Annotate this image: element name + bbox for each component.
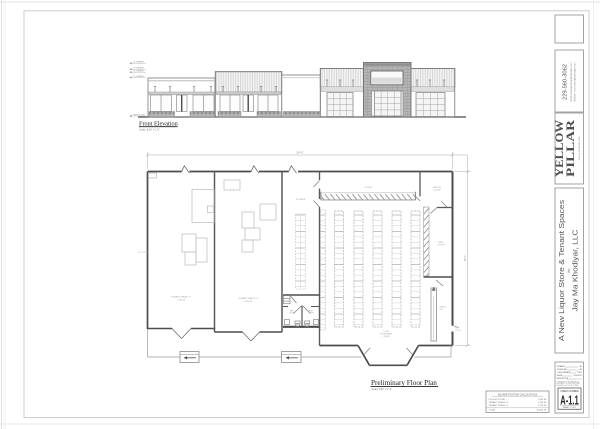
svg-text:7,286 SF: 7,286 SF (382, 336, 390, 338)
svg-text:1,786 SF: 1,786 SF (538, 405, 548, 407)
svg-text:COOLER: COOLER (437, 245, 445, 247)
svg-text:T.O. PARAPET: T.O. PARAPET (133, 61, 144, 64)
svg-text:ROOM: ROOM (290, 312, 296, 314)
svg-text:DATE: DATE (557, 374, 563, 377)
svg-text:T.O. PARAPET: T.O. PARAPET (133, 75, 144, 78)
svg-text:SQUARE FOOTAGE CALCULATIONS: SQUARE FOOTAGE CALCULATIONS (498, 393, 538, 396)
svg-text:TENANT SPACE #2: TENANT SPACE #2 (238, 297, 258, 300)
svg-text:1,786 SF: 1,786 SF (177, 300, 187, 302)
svg-text:7,286 SF: 7,286 SF (538, 399, 548, 401)
svg-text:SHEET 1 OF 1: SHEET 1 OF 1 (563, 407, 577, 409)
svg-text:A New Liquor Store & Tenant Sp: A New Liquor Store & Tenant Spaces (557, 200, 566, 341)
svg-text:FINISH FLOOR: FINISH FLOOR (133, 114, 146, 116)
svg-text:01/05/23: 01/05/23 (574, 375, 583, 377)
svg-text:Scale: 3/16" = 1'-0": Scale: 3/16" = 1'-0" (140, 128, 160, 131)
svg-text:204'-0": 204'-0" (296, 152, 304, 155)
svg-text:Website: www.yellowpillardesig: Website: www.yellowpillardesigns.com (573, 62, 576, 101)
svg-text:YELLOW PILLAR DESIGNS: YELLOW PILLAR DESIGNS (578, 136, 581, 161)
svg-text:DESIGNS, NOT TO BE COPIED: DESIGNS, NOT TO BE COPIED (557, 385, 580, 387)
svg-text:85'-4": 85'-4" (464, 255, 467, 261)
svg-text:REST: REST (290, 310, 294, 312)
svg-text:TOTAL: TOTAL (489, 409, 497, 412)
svg-text:229-560-3062: 229-560-3062 (563, 64, 569, 100)
svg-text:10,858 SF: 10,858 SF (536, 410, 547, 412)
svg-text:STORAGE: STORAGE (296, 198, 306, 201)
svg-text:20'-0": 20'-0" (138, 252, 143, 254)
svg-text:1,786 SF: 1,786 SF (244, 301, 254, 303)
svg-text:TENANT SPACE #1: TENANT SPACE #1 (171, 296, 191, 299)
svg-text:DOOR: DOOR (456, 330, 462, 332)
svg-text:T.O. PARAPET: T.O. PARAPET (133, 70, 144, 73)
svg-text:Preliminary Floor Plan: Preliminary Floor Plan (371, 379, 437, 387)
svg-text:Jay Ma Khodiyar, LLC: Jay Ma Khodiyar, LLC (571, 229, 580, 312)
svg-text:COOLER: COOLER (364, 187, 373, 189)
svg-text:TENANT SPACE #2: TENANT SPACE #2 (489, 404, 509, 407)
svg-text:CHECKED: CHECKED (557, 369, 568, 371)
svg-text:PILLAR: PILLAR (565, 119, 577, 177)
svg-text:T.O. PARAPET: T.O. PARAPET (133, 67, 144, 70)
svg-text:REVISIONS: REVISIONS (557, 378, 569, 380)
svg-text:DRAWN: DRAWN (557, 365, 565, 368)
svg-text:JOB NUMBER: JOB NUMBER (557, 372, 571, 374)
svg-text:Scale: 3/32" = 1'-0": Scale: 3/32" = 1'-0" (372, 388, 392, 391)
svg-text:REST: REST (309, 310, 313, 312)
svg-text:COOLER: COOLER (433, 190, 441, 192)
svg-text:1,786 SF: 1,786 SF (538, 402, 548, 404)
svg-text:ROOM: ROOM (309, 312, 315, 314)
svg-text:LIQUOR STORE: LIQUOR STORE (489, 399, 506, 401)
svg-text:Email: kevin@yellowpillardesig: Email: kevin@yellowpillardesigns.com (570, 62, 573, 101)
svg-text:TENANT SPACE #1: TENANT SPACE #1 (489, 401, 509, 404)
svg-text:A-1.1: A-1.1 (560, 393, 579, 408)
